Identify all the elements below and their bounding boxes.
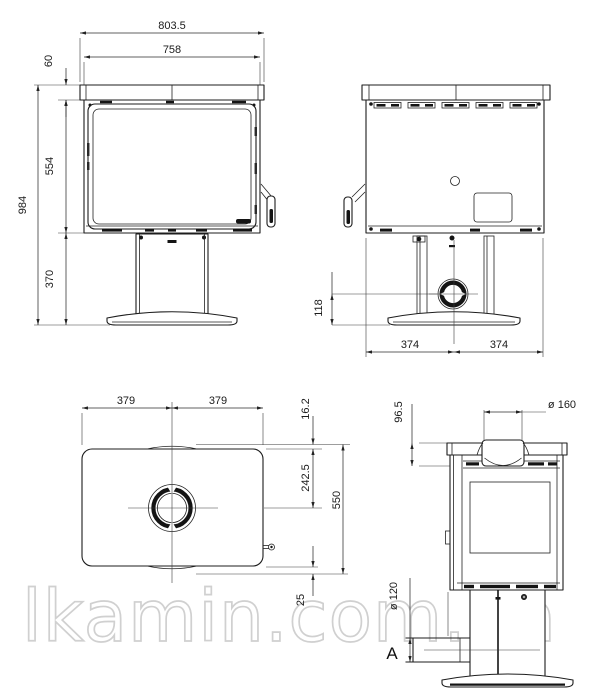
- rear-body: [366, 100, 544, 233]
- dim-front-plate-height: 60: [43, 55, 55, 67]
- rear-stove: [344, 85, 550, 344]
- rear-view: 118 374 374: [313, 85, 550, 357]
- dim-rear-half-width-right: 374: [490, 339, 508, 351]
- side-pedestal: [470, 590, 545, 679]
- dim-side-flue-diameter: ø 160: [548, 399, 576, 411]
- dim-top-rear-offset: 25: [295, 594, 307, 606]
- front-dimensions: 803.5 758 60 554 370 984: [17, 20, 264, 325]
- dim-top-half-width-left: 379: [117, 395, 135, 407]
- rear-centerlines: [429, 240, 478, 344]
- dim-top-front-offset: 16.2: [300, 398, 312, 419]
- dim-front-pedestal-height: 370: [44, 270, 56, 288]
- rear-door-handle: [344, 184, 365, 227]
- front-pedestal: [136, 234, 208, 316]
- dim-top-half-width-right: 379: [209, 395, 227, 407]
- side-body: [450, 455, 563, 590]
- dim-side-intake-diameter: ø 120: [388, 582, 400, 610]
- dim-front-overall-height: 984: [17, 196, 29, 214]
- rear-corner-bolts: [369, 102, 541, 231]
- front-stove: [80, 85, 275, 325]
- side-flue-collar: [477, 440, 529, 466]
- front-door-glass: [93, 109, 251, 224]
- dim-side-collar-drop: 96.5: [393, 401, 405, 422]
- label-intake-connection: A: [386, 644, 398, 663]
- front-logo-badge: [236, 219, 251, 224]
- dim-front-overall-width: 803.5: [158, 20, 186, 32]
- front-base: [107, 312, 237, 325]
- dim-rear-intake-height: 118: [313, 299, 325, 317]
- front-view: 803.5 758 60 554 370 984: [17, 20, 275, 325]
- front-door-hinges: [87, 127, 257, 214]
- drawing-sheet: lkamin.com.ua: [0, 0, 600, 694]
- rear-center-hole: [451, 177, 460, 186]
- top-stove-body: [82, 402, 275, 583]
- dim-top-overall-depth: 550: [331, 491, 343, 509]
- rear-access-panel: [474, 193, 512, 222]
- side-base: [442, 674, 573, 687]
- rear-bottom-band: [368, 226, 542, 247]
- rear-vent-slots: [374, 103, 537, 109]
- rear-extension-lines: [332, 238, 543, 357]
- dim-top-flue-depth: 242.5: [300, 464, 312, 492]
- side-hinge: [446, 531, 451, 544]
- dim-front-body-width: 758: [163, 44, 181, 56]
- front-door-frame: [88, 104, 256, 229]
- front-door-handle: [261, 184, 275, 227]
- rear-dimensions: 118 374 374: [313, 272, 543, 352]
- dim-rear-half-width-left: 374: [401, 339, 419, 351]
- front-body: [84, 100, 260, 233]
- dim-front-firebox-height: 554: [44, 157, 56, 175]
- front-extension-lines: [34, 38, 264, 325]
- top-side-knob: [263, 544, 275, 550]
